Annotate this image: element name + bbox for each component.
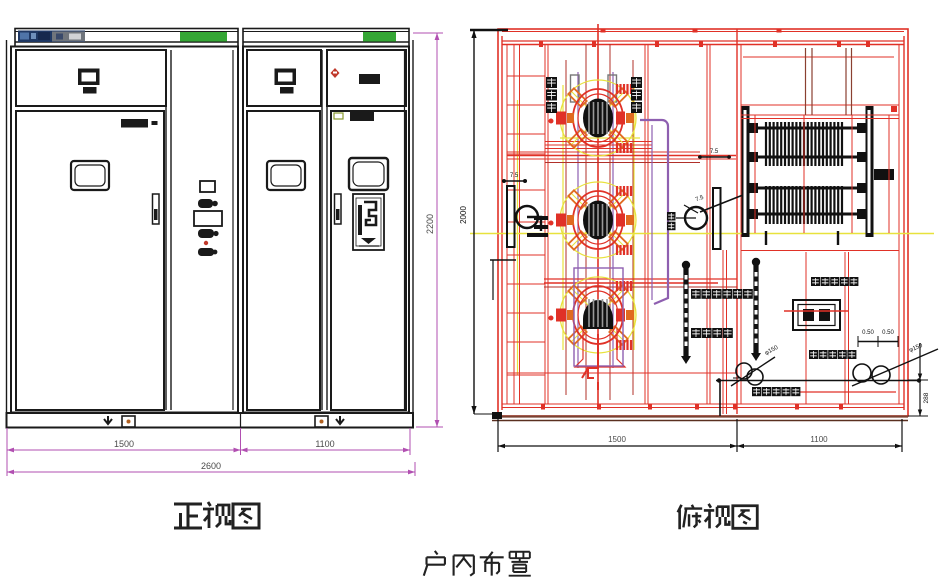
svg-text:1100: 1100	[315, 439, 334, 449]
svg-text:1100: 1100	[810, 435, 828, 444]
svg-text:0.50: 0.50	[882, 330, 894, 336]
svg-text:2600: 2600	[201, 461, 221, 471]
svg-text:1500: 1500	[114, 439, 134, 449]
svg-text:2200: 2200	[425, 214, 435, 234]
svg-text:0.50: 0.50	[862, 330, 874, 336]
svg-text:7.5: 7.5	[510, 173, 519, 179]
svg-text:288: 288	[923, 392, 930, 403]
svg-text:7.5: 7.5	[710, 149, 719, 155]
svg-text:2000: 2000	[459, 206, 468, 224]
svg-text:1500: 1500	[608, 435, 626, 444]
